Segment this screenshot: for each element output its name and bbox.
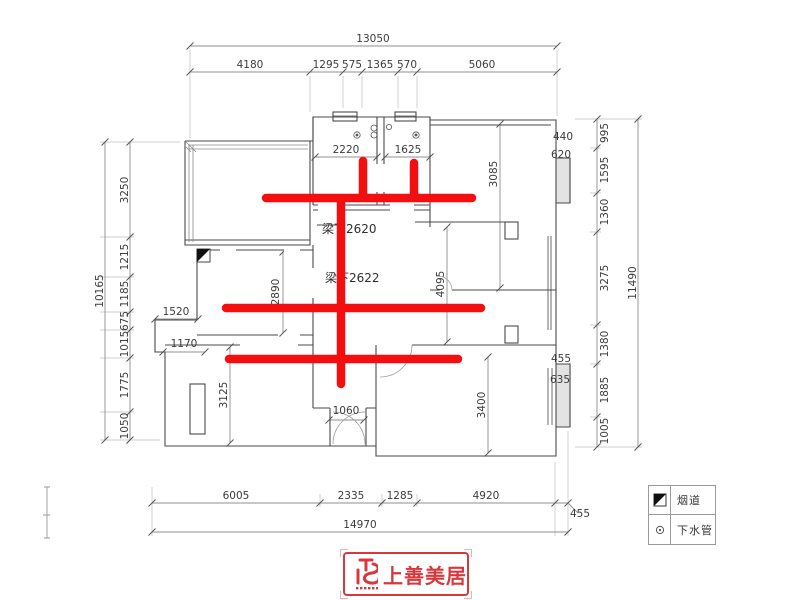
dim-top-4: 570 [397, 59, 417, 71]
dim-bottom-1: 2335 [338, 490, 365, 502]
drain-symbols [354, 124, 419, 138]
dim-left-6: 1050 [119, 413, 131, 440]
dim-top-5: 5060 [469, 59, 496, 71]
flue-symbol [197, 249, 210, 262]
dim-room-top-right: 3085 [488, 161, 500, 188]
dim-right-4: 1380 [599, 331, 611, 358]
balcony-window-lines [186, 142, 308, 242]
dim-bottom-total: 14970 [343, 519, 376, 531]
dim-top-3: 1365 [367, 59, 394, 71]
flue-icon [653, 493, 667, 507]
dim-left-2: 1185 [119, 281, 131, 308]
dim-right-6: 1005 [599, 418, 611, 445]
dim-left-1: 1215 [119, 244, 131, 271]
dim-right-5: 1885 [599, 377, 611, 404]
dim-bottom-2: 1285 [387, 490, 414, 502]
dim-left-5: 1775 [119, 372, 131, 399]
witness-lines [100, 50, 642, 536]
dim-right-0: 995 [599, 123, 611, 143]
dim-step-lower: 1170 [171, 338, 198, 350]
dim-top-1: 1295 [313, 59, 340, 71]
dim-room-middle-left: 2890 [270, 279, 282, 306]
dim-notch-620: 620 [551, 149, 571, 161]
dim-room-bottom-right: 3400 [476, 392, 488, 419]
dim-left-3: 675 [119, 311, 131, 331]
beam-annotations: 梁下2620 梁下2622 [322, 221, 380, 285]
dim-top-0: 4180 [237, 59, 264, 71]
dim-right-2: 1360 [599, 199, 611, 226]
dim-bottom-0: 6005 [223, 490, 250, 502]
left-stray-dimension-bracket [43, 487, 50, 538]
legend-flue-label: 烟道 [671, 486, 715, 515]
dim-bath-left: 2220 [333, 144, 360, 156]
beam-label-2: 梁下2622 [325, 270, 380, 285]
dim-top-total: 13050 [356, 33, 389, 45]
brand-logo-text: 上善美居 [383, 560, 467, 589]
dim-room-bottom-left: 3125 [218, 382, 230, 409]
dim-notch-455: 455 [551, 353, 571, 365]
legend-flue-icon-cell [649, 486, 671, 515]
dim-step-upper: 1520 [163, 306, 190, 318]
dim-notch-440: 440 [553, 131, 573, 143]
dim-left-4: 1015 [119, 331, 131, 358]
dim-bath-right: 1625 [395, 144, 422, 156]
drain-icon [654, 524, 666, 536]
legend-drain-icon-cell [649, 515, 671, 544]
door-openings [220, 164, 414, 350]
brand-logo-mark [352, 556, 378, 592]
dim-room-middle: 4095 [435, 271, 447, 298]
dim-bottom-4: 455 [570, 508, 590, 520]
legend-table: 烟道 下水管 [648, 485, 716, 545]
dim-right-total: 11490 [627, 266, 639, 299]
dim-entry-door: 1060 [333, 405, 360, 417]
floorplan-page: 13050 4180 1295 575 1365 570 5060 10165 … [0, 0, 800, 600]
dim-right-3: 3275 [599, 265, 611, 292]
legend-drain-label: 下水管 [671, 515, 715, 544]
beam-label-1: 梁下2620 [322, 221, 377, 236]
dim-right-1: 1595 [599, 157, 611, 184]
dim-bottom-3: 4920 [473, 490, 500, 502]
dimension-lines [105, 46, 638, 532]
dim-left-0: 3250 [119, 177, 131, 204]
dim-notch-635: 635 [550, 374, 570, 386]
dim-left-total: 10165 [94, 274, 106, 307]
dim-top-2: 575 [342, 59, 362, 71]
brand-logo: 上善美居 [343, 552, 469, 596]
